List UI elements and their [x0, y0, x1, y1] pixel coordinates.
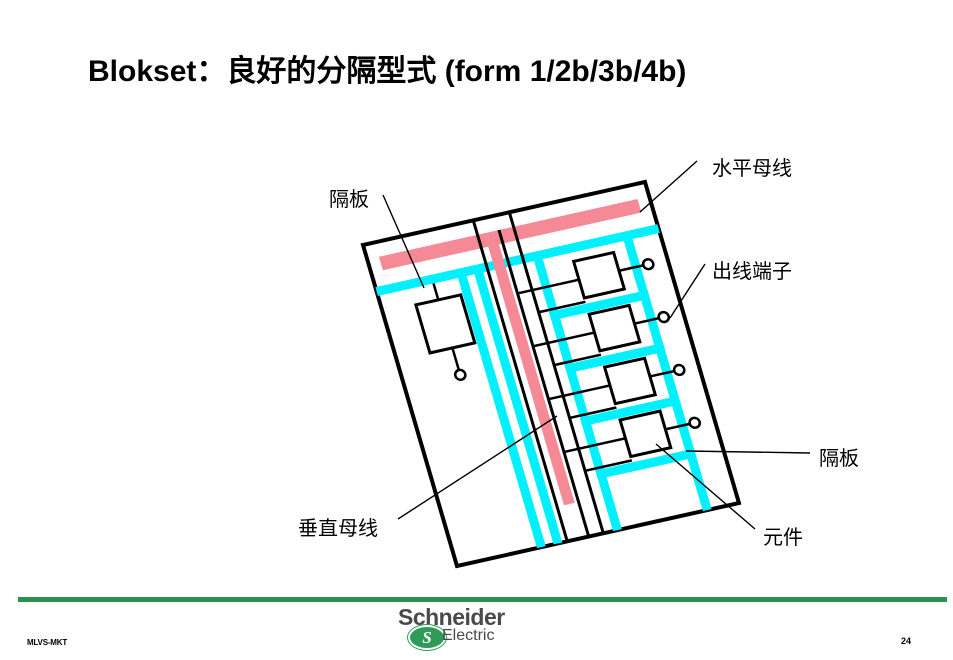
- label-partition-right: 隔板: [819, 442, 859, 471]
- incomer-terminal-circle: [454, 369, 467, 381]
- component-box-1: [574, 252, 625, 297]
- schneider-badge: S: [408, 625, 446, 650]
- label-horizontal-busbar: 水平母线: [712, 152, 792, 181]
- slide: Blokset：良好的分隔型式 (form 1/2b/3b/4b): [0, 0, 953, 660]
- label-component: 元件: [763, 521, 803, 550]
- outgoing-terminal-3: [673, 364, 686, 376]
- footer-document-code: MLVS-MKT: [27, 638, 67, 647]
- cabinet-diagram: [0, 0, 953, 660]
- outgoing-terminal-2: [657, 311, 670, 323]
- leader-horizontal-busbar: [640, 161, 697, 212]
- logo-sub-text: Electric: [442, 627, 494, 645]
- logo-s-icon: S: [410, 627, 444, 648]
- outgoing-terminal-1: [642, 258, 655, 270]
- schneider-electric-logo: Schneider S Electric: [396, 604, 516, 654]
- label-vertical-busbar: 垂直母线: [298, 512, 378, 541]
- footer-divider-line: [18, 597, 947, 602]
- component-box-2: [589, 305, 640, 350]
- component-box-3: [605, 358, 656, 403]
- cabinet-group: [363, 182, 739, 566]
- label-outgoing-terminals: 出线端子: [712, 255, 792, 284]
- outgoing-terminal-4: [688, 417, 701, 429]
- label-partition-top: 隔板: [329, 183, 369, 212]
- page-number: 24: [901, 636, 911, 646]
